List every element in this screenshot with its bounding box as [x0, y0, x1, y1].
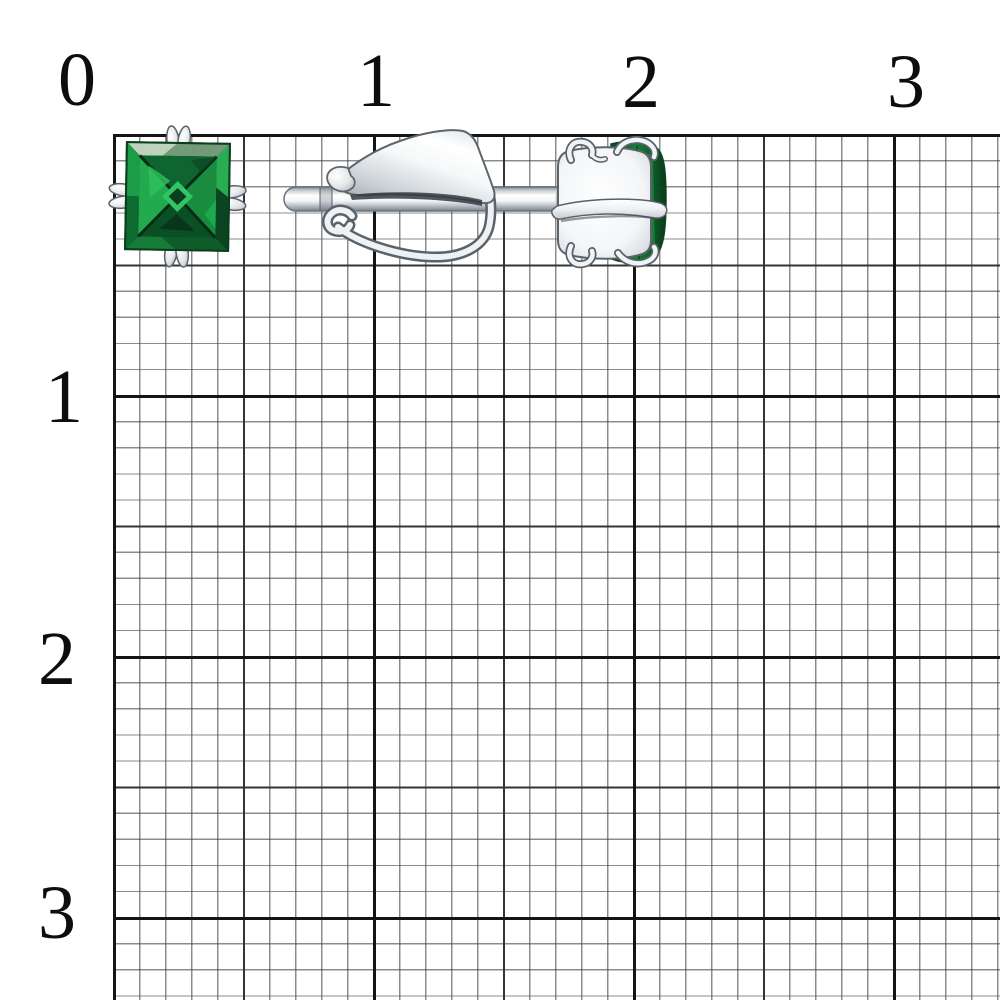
earrings-photo [0, 0, 1000, 1000]
side-view-earring [284, 130, 667, 264]
front-view-earring [107, 124, 248, 269]
butterfly-clutch [327, 130, 494, 257]
clutch-fin [337, 130, 495, 203]
product-photo-canvas: 0 1 2 3 1 2 3 [0, 0, 1000, 1000]
prong-basket [552, 140, 667, 264]
stone-front-view [125, 142, 230, 251]
